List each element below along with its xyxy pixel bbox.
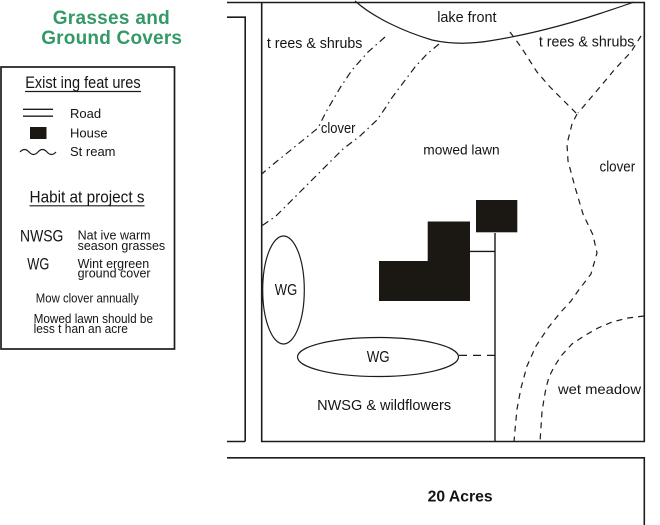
- svg-text:St ream: St ream: [70, 144, 116, 159]
- svg-text:NWSG & wildflowers: NWSG & wildflowers: [317, 397, 451, 414]
- svg-text:less t han an acre: less t han an acre: [34, 322, 128, 336]
- svg-text:NWSG: NWSG: [20, 226, 63, 245]
- svg-text:t rees & shrubs: t rees & shrubs: [267, 35, 363, 52]
- svg-text:Exist ing feat ures: Exist ing feat ures: [25, 73, 140, 92]
- svg-text:t rees & shrubs: t rees & shrubs: [539, 34, 635, 51]
- svg-text:WG: WG: [27, 255, 49, 274]
- svg-text:20 Acres: 20 Acres: [428, 489, 493, 506]
- svg-text:House: House: [70, 125, 108, 140]
- svg-text:Grasses and: Grasses and: [53, 8, 170, 29]
- svg-text:wet meadow: wet meadow: [557, 381, 642, 397]
- svg-text:WG: WG: [275, 282, 297, 299]
- svg-text:clover: clover: [600, 158, 636, 175]
- svg-text:Mow clover annually: Mow clover annually: [36, 292, 140, 306]
- svg-text:season grasses: season grasses: [78, 239, 166, 253]
- svg-text:Habit at project s: Habit at project s: [30, 188, 145, 207]
- svg-text:ground cover: ground cover: [78, 266, 151, 280]
- svg-text:mowed lawn: mowed lawn: [423, 142, 499, 158]
- svg-text:Ground Covers: Ground Covers: [41, 28, 182, 49]
- svg-text:lake front: lake front: [437, 9, 497, 26]
- svg-text:Road: Road: [70, 106, 101, 121]
- svg-text:WG: WG: [367, 349, 390, 366]
- svg-text:clover: clover: [321, 120, 356, 137]
